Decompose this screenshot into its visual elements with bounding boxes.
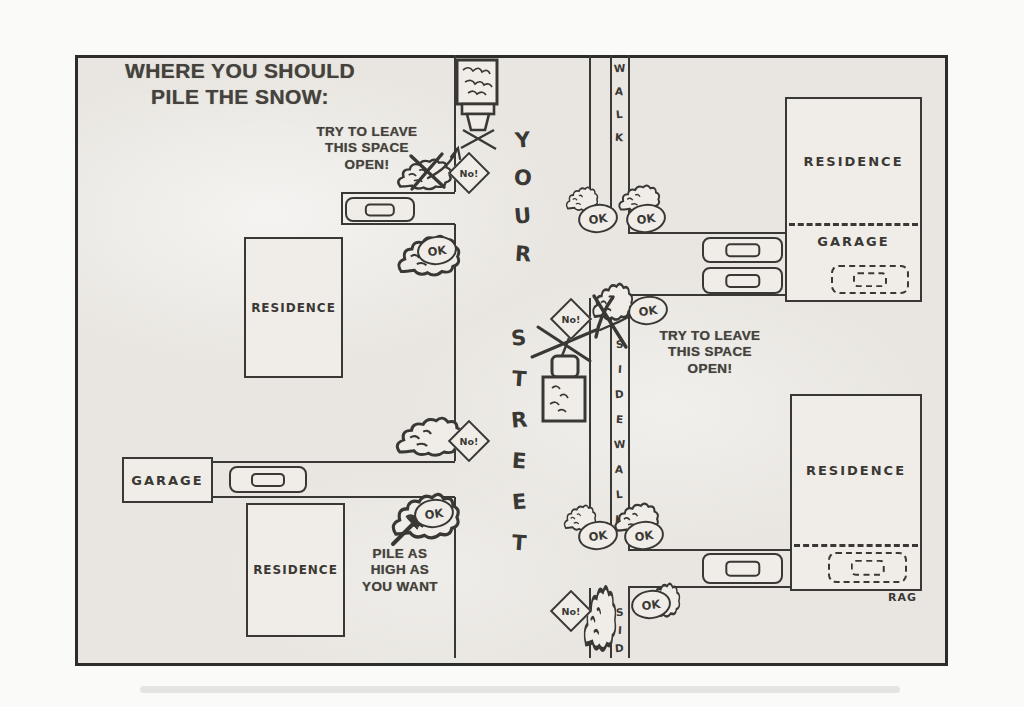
ok-sign-label: OK xyxy=(634,527,654,543)
note-line: TRY TO LEAVE xyxy=(297,124,437,140)
garage-divider-dashed xyxy=(794,544,918,547)
no-sign: No! xyxy=(450,422,488,460)
note-leave-open-right: TRY TO LEAVE THIS SPACE OPEN! xyxy=(641,328,779,377)
sidewalk-label-top: WALK xyxy=(611,62,628,143)
note-line: THIS SPACE xyxy=(297,140,437,156)
residence-label: RESIDENCE xyxy=(251,301,336,315)
page-title: WHERE YOU SHOULD PILE THE SNOW: xyxy=(100,58,380,109)
scan-smudge xyxy=(140,686,900,693)
residence-lower-left: RESIDENCE xyxy=(246,503,345,637)
title-line-1: WHERE YOU SHOULD xyxy=(100,58,380,84)
sidewalk-edge-line xyxy=(628,55,630,232)
snow-pile-flyer: WHERE YOU SHOULD PILE THE SNOW: TRY TO L… xyxy=(0,0,1024,707)
no-sign-label: No! xyxy=(562,606,581,617)
ok-sign-label: OK xyxy=(588,210,608,226)
no-sign-label: No! xyxy=(460,436,479,447)
note-line: THIS SPACE xyxy=(641,344,779,360)
no-sign: No! xyxy=(450,154,488,192)
ok-sign-label: OK xyxy=(427,242,447,258)
west-curb-line xyxy=(454,497,456,658)
street-name-street: STREET xyxy=(504,326,534,555)
note-line: HIGH AS xyxy=(348,562,452,578)
residence-label: RESIDENCE xyxy=(253,563,338,577)
note-line: YOU WANT xyxy=(348,579,452,595)
sidewalk-label-middle: SIDEWALK xyxy=(611,338,628,525)
sidewalk-label-bottom: SID xyxy=(611,606,628,654)
car-icon xyxy=(702,553,783,584)
sidewalk-edge-line xyxy=(628,298,630,549)
car-icon xyxy=(345,197,415,222)
no-sign-label: No! xyxy=(562,314,581,325)
note-leave-open-top: TRY TO LEAVE THIS SPACE OPEN! xyxy=(297,124,437,173)
note-line: PILE AS xyxy=(348,546,452,562)
residence-label: RESIDENCE xyxy=(803,154,903,169)
ok-sign-label: OK xyxy=(588,527,608,543)
note-pile-high: PILE AS HIGH AS YOU WANT xyxy=(348,546,452,595)
ok-sign-label: OK xyxy=(641,596,661,612)
note-line: OPEN! xyxy=(641,361,779,377)
residence-garage-upper-right: RESIDENCE GARAGE xyxy=(785,97,922,302)
note-line: OPEN! xyxy=(297,157,437,173)
title-line-2: PILE THE SNOW: xyxy=(100,84,380,110)
car-icon xyxy=(229,466,307,493)
no-sign: No! xyxy=(552,300,590,338)
residence-section: RESIDENCE xyxy=(787,99,920,223)
garage-left: GARAGE xyxy=(122,457,213,503)
sidewalk-edge-line xyxy=(628,588,630,658)
garage-label: GARAGE xyxy=(131,473,203,488)
residence-upper-left: RESIDENCE xyxy=(244,237,343,378)
ok-sign-label: OK xyxy=(638,302,658,318)
residence-label: RESIDENCE xyxy=(806,463,906,478)
street-name-your: YOUR xyxy=(508,128,538,266)
car-icon xyxy=(702,267,783,294)
residence-garage-lower-right: RESIDENCE xyxy=(790,394,922,591)
east-curb-line xyxy=(589,55,591,207)
no-sign-label: No! xyxy=(460,168,479,179)
residence-section: RESIDENCE xyxy=(792,396,920,544)
artist-signature: RAG xyxy=(888,591,917,604)
ok-sign-label: OK xyxy=(424,505,444,521)
parked-car-dashed-icon xyxy=(828,552,907,583)
ok-sign-label: OK xyxy=(636,210,656,226)
parked-car-dashed-icon xyxy=(831,265,909,294)
car-icon xyxy=(702,237,783,263)
note-line: TRY TO LEAVE xyxy=(641,328,779,344)
no-sign: No! xyxy=(552,592,590,630)
garage-label: GARAGE xyxy=(817,234,889,249)
garage-section: GARAGE xyxy=(787,226,920,256)
